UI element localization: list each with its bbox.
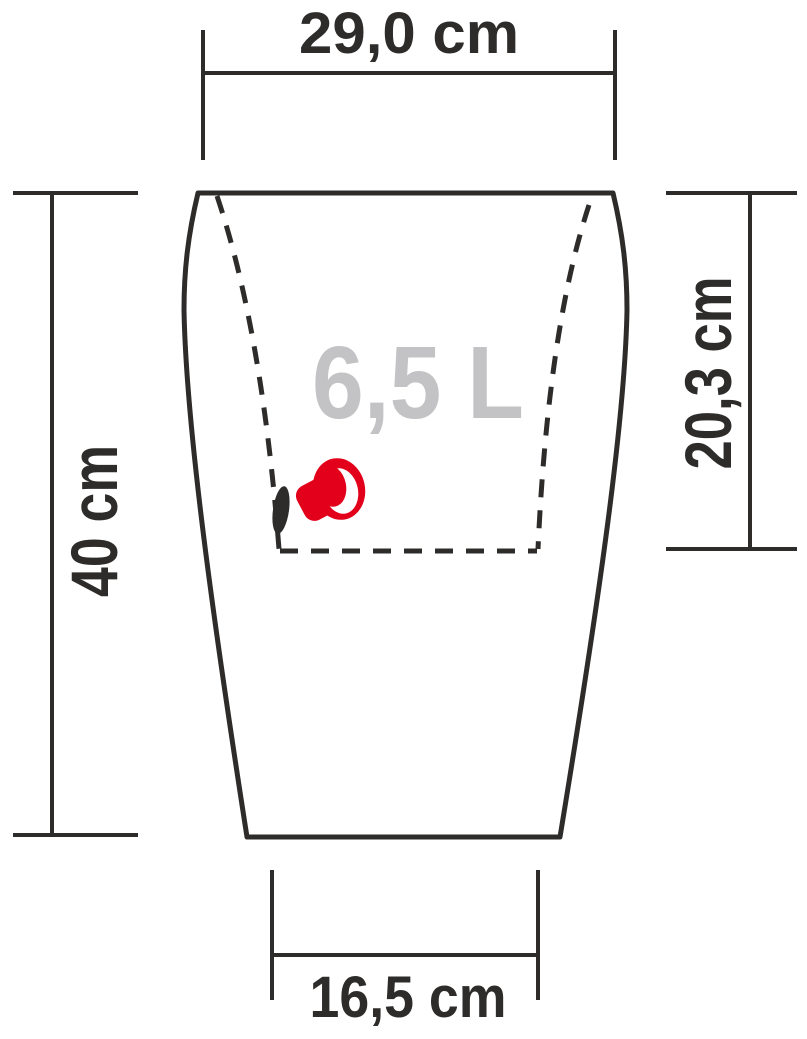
liner-left-dashed-line xyxy=(217,196,279,549)
dimension-base-width: 16,5 cm xyxy=(272,870,538,1030)
drain-hole xyxy=(270,485,293,535)
water-level-indicator-icon xyxy=(292,453,371,524)
base-width-label: 16,5 cm xyxy=(310,965,507,1030)
top-width-label: 29,0 cm xyxy=(299,1,519,66)
height-label: 40 cm xyxy=(57,445,131,597)
volume-label: 6,5 L xyxy=(312,325,524,440)
liner-right-dashed-line xyxy=(538,205,589,549)
planting-depth-label: 20,3 cm xyxy=(671,277,745,470)
dimension-diagram: 6,5 L 29,0 cm 40 cm 20,3 cm 16,5 xyxy=(0,0,807,1039)
diagram-canvas: 6,5 L 29,0 cm 40 cm 20,3 cm 16,5 xyxy=(0,0,807,1039)
pot-outline xyxy=(184,193,627,837)
dimension-height: 40 cm xyxy=(13,193,138,835)
dimension-planting-depth: 20,3 cm xyxy=(666,193,797,549)
dimension-top-width: 29,0 cm xyxy=(203,1,615,160)
